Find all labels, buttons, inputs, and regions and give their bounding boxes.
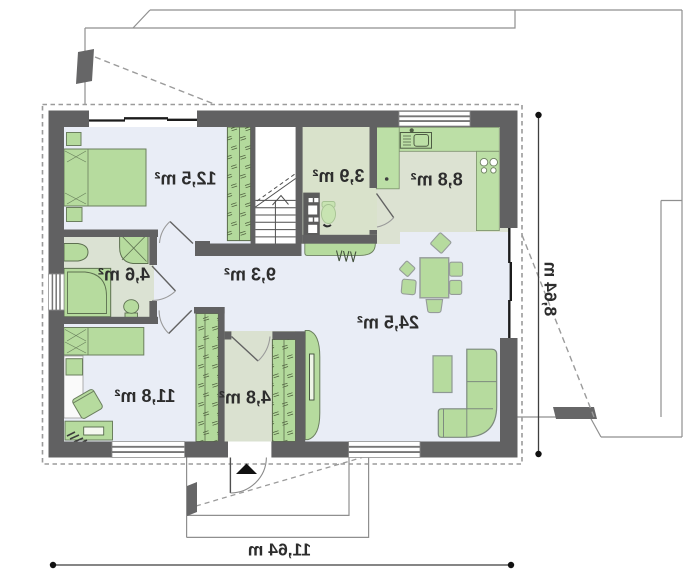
svg-text:8,8 m²: 8,8 m² — [411, 169, 463, 189]
svg-text:4,6 m²: 4,6 m² — [98, 264, 150, 284]
svg-text:4,8 m²: 4,8 m² — [219, 387, 271, 407]
svg-text:24,5 m²: 24,5 m² — [357, 312, 419, 332]
svg-text:11,8 m²: 11,8 m² — [114, 386, 175, 406]
svg-text:9,3 m²: 9,3 m² — [224, 264, 276, 284]
svg-text:3,9 m²: 3,9 m² — [312, 166, 364, 186]
svg-text:8,64 m: 8,64 m — [541, 262, 561, 316]
svg-text:11,64 m: 11,64 m — [248, 540, 311, 560]
svg-text:12,5 m²: 12,5 m² — [154, 168, 216, 188]
